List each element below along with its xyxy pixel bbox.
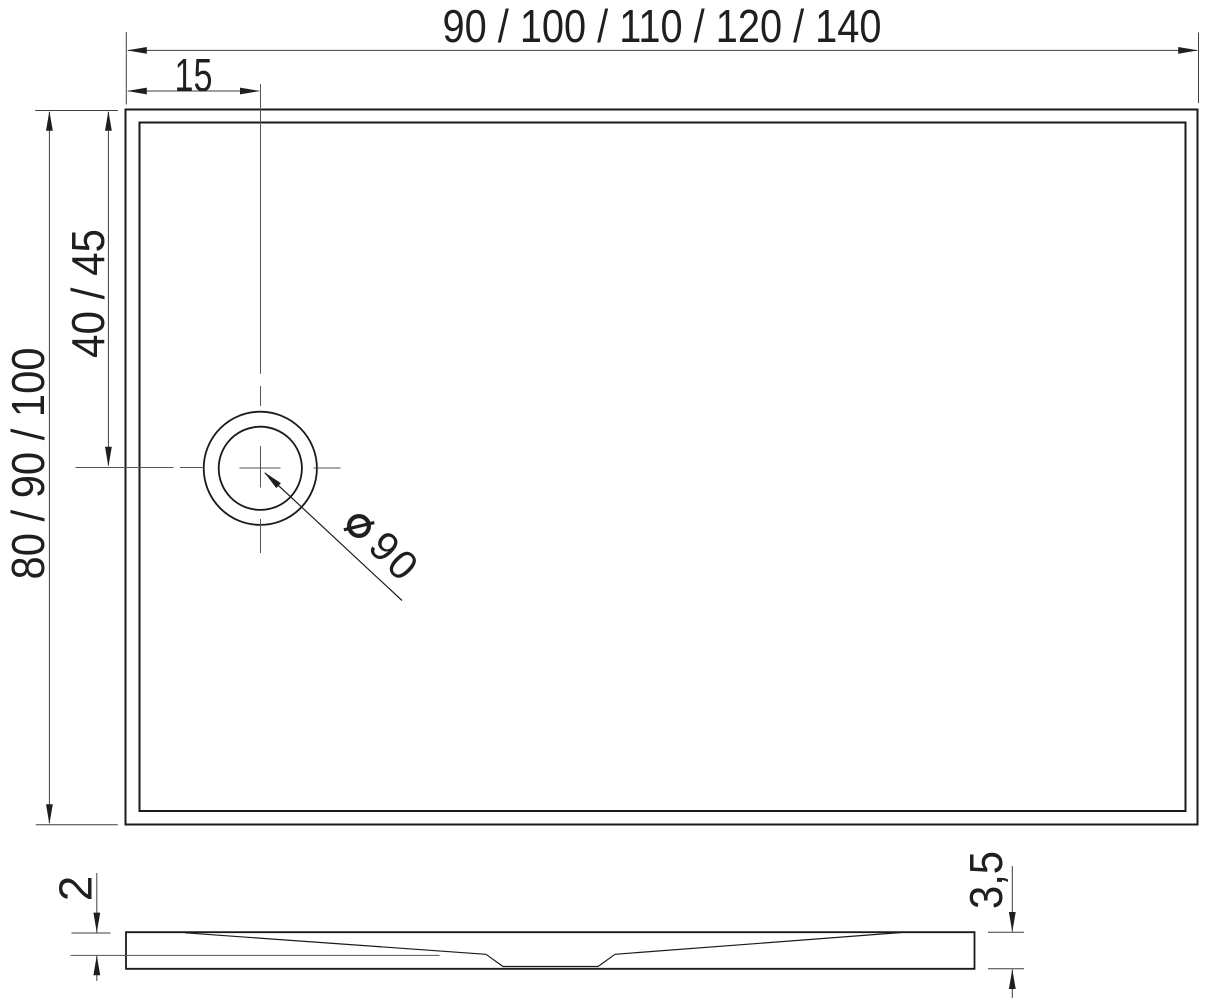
svg-text:3,5: 3,5 [960,851,1012,909]
svg-text:90 / 100 / 110 / 120 / 140: 90 / 100 / 110 / 120 / 140 [443,0,882,52]
svg-text:2: 2 [50,876,102,902]
svg-text:40 / 45: 40 / 45 [62,229,114,358]
svg-text:15: 15 [175,49,213,101]
svg-text:80 / 90 / 100: 80 / 90 / 100 [2,348,54,580]
